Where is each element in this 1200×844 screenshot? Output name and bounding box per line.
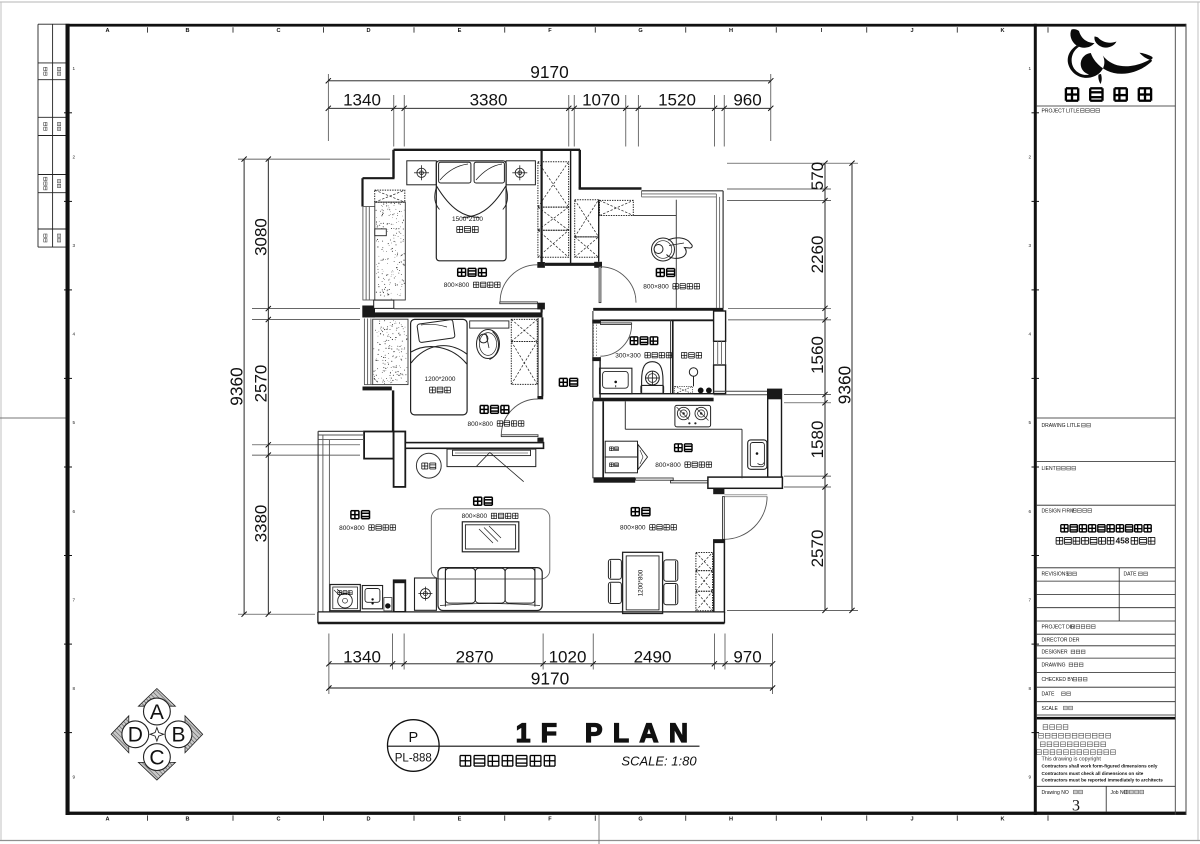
svg-text:9170: 9170 (530, 62, 568, 82)
svg-text:D: D (128, 724, 143, 747)
svg-text:B: B (185, 816, 189, 822)
svg-text:LIENT: LIENT (1042, 466, 1056, 472)
svg-text:3380: 3380 (470, 91, 508, 110)
svg-text:1560: 1560 (808, 336, 827, 374)
svg-text:REVISIONS: REVISIONS (1042, 572, 1070, 578)
svg-text:3080: 3080 (252, 218, 271, 256)
svg-text:PL-888: PL-888 (395, 753, 432, 765)
svg-text:1020: 1020 (549, 647, 587, 666)
svg-text:800×800: 800×800 (462, 513, 488, 520)
svg-text:B: B (171, 724, 185, 747)
svg-text:3: 3 (1029, 243, 1032, 248)
svg-text:P: P (408, 730, 418, 746)
svg-text:8: 8 (73, 686, 76, 691)
svg-text:CHECKED BY: CHECKED BY (1042, 677, 1075, 683)
svg-text:1F PLAN: 1F PLAN (516, 718, 699, 748)
svg-text:1340: 1340 (343, 647, 381, 666)
svg-text:1200*2000: 1200*2000 (425, 376, 456, 383)
svg-text:DATE: DATE (1124, 572, 1138, 578)
svg-text:A: A (150, 701, 164, 724)
svg-text:6: 6 (73, 509, 76, 514)
svg-text:C: C (149, 746, 164, 769)
svg-text:2260: 2260 (808, 236, 827, 274)
svg-text:800×800: 800×800 (339, 525, 365, 532)
svg-text:9: 9 (73, 774, 76, 779)
svg-text:960: 960 (733, 91, 761, 110)
svg-text:2490: 2490 (634, 647, 672, 666)
svg-text:B: B (185, 28, 189, 34)
svg-text:9: 9 (1029, 774, 1032, 779)
svg-text:9170: 9170 (531, 669, 569, 689)
svg-text:F: F (548, 28, 552, 34)
svg-text:1: 1 (1029, 66, 1032, 71)
svg-text:3: 3 (73, 243, 76, 248)
svg-text:5: 5 (1029, 420, 1032, 425)
svg-text:H: H (729, 816, 733, 822)
svg-text:PROJECT LITLE: PROJECT LITLE (1042, 108, 1081, 114)
svg-text:This drawing is copyright: This drawing is copyright (1042, 756, 1102, 762)
svg-text:800×800: 800×800 (643, 284, 669, 291)
svg-text:1500*2100: 1500*2100 (452, 216, 483, 223)
svg-text:D: D (366, 28, 370, 34)
svg-text:G: G (638, 28, 642, 34)
svg-text:8: 8 (1029, 686, 1032, 691)
svg-text:Drawing NO: Drawing NO (1042, 790, 1069, 796)
svg-text:E: E (458, 28, 462, 34)
svg-text:800×800: 800×800 (468, 421, 494, 428)
svg-text:6: 6 (1029, 509, 1032, 514)
svg-text:Contractors must check all dim: Contractors must check all dimensions on… (1042, 771, 1144, 776)
svg-text:A: A (105, 816, 109, 822)
svg-text:970: 970 (733, 647, 761, 666)
svg-text:DESIGN FIRM: DESIGN FIRM (1042, 508, 1075, 514)
svg-text:2870: 2870 (456, 647, 494, 666)
svg-text:D: D (366, 816, 370, 822)
svg-text:9360: 9360 (834, 366, 854, 404)
svg-text:C: C (276, 28, 280, 34)
svg-text:K: K (1000, 28, 1004, 34)
svg-text:800×800: 800×800 (620, 525, 646, 532)
svg-text:5: 5 (73, 420, 76, 425)
svg-text:300×300: 300×300 (615, 353, 641, 360)
svg-text:Contractors must be reported i: Contractors must be reported immediately… (1042, 778, 1164, 783)
svg-text:A: A (105, 28, 109, 34)
svg-text:DATE: DATE (1042, 692, 1056, 698)
svg-text:C: C (276, 816, 280, 822)
svg-text:4: 4 (1029, 332, 1032, 337)
svg-text:800×800: 800×800 (655, 462, 681, 469)
svg-text:DRAWING LITLE: DRAWING LITLE (1042, 423, 1081, 429)
svg-text:2570: 2570 (808, 530, 827, 568)
svg-text:G: G (638, 816, 642, 822)
svg-text:1: 1 (73, 66, 76, 71)
svg-text:570: 570 (808, 162, 827, 190)
svg-text:3: 3 (1072, 798, 1080, 815)
svg-text:F: F (548, 816, 552, 822)
svg-text:SCALE: SCALE (1042, 706, 1059, 712)
svg-text:J: J (910, 816, 913, 822)
svg-text:9360: 9360 (227, 367, 247, 405)
svg-text:1200*800: 1200*800 (638, 569, 645, 596)
svg-text:2: 2 (73, 155, 76, 160)
svg-text:DRAWING: DRAWING (1042, 663, 1066, 669)
svg-text:H: H (729, 28, 733, 34)
svg-text:3380: 3380 (252, 505, 271, 543)
svg-text:Job NO: Job NO (1111, 790, 1128, 796)
svg-text:K: K (1000, 816, 1004, 822)
svg-text:1580: 1580 (808, 421, 827, 459)
svg-text:7: 7 (73, 597, 76, 602)
svg-text:DIRECTOR DER: DIRECTOR DER (1042, 638, 1080, 644)
svg-text:E: E (458, 816, 462, 822)
svg-text:Contractors shall work form-fi: Contractors shall work form-figured dime… (1042, 764, 1158, 769)
svg-text:J: J (910, 28, 913, 34)
svg-text:PROJECT DIR: PROJECT DIR (1042, 624, 1076, 630)
svg-text:458: 458 (1116, 537, 1130, 546)
svg-text:800×800: 800×800 (444, 282, 470, 289)
svg-text:SCALE: 1:80: SCALE: 1:80 (621, 754, 697, 769)
svg-text:7: 7 (1029, 597, 1032, 602)
svg-text:2570: 2570 (252, 365, 271, 403)
svg-text:1070: 1070 (582, 91, 620, 110)
svg-text:DESIGNER: DESIGNER (1042, 650, 1069, 656)
svg-text:4: 4 (73, 332, 76, 337)
svg-text:2: 2 (1029, 155, 1032, 160)
svg-text:1340: 1340 (343, 91, 381, 110)
svg-text:1520: 1520 (658, 91, 696, 110)
